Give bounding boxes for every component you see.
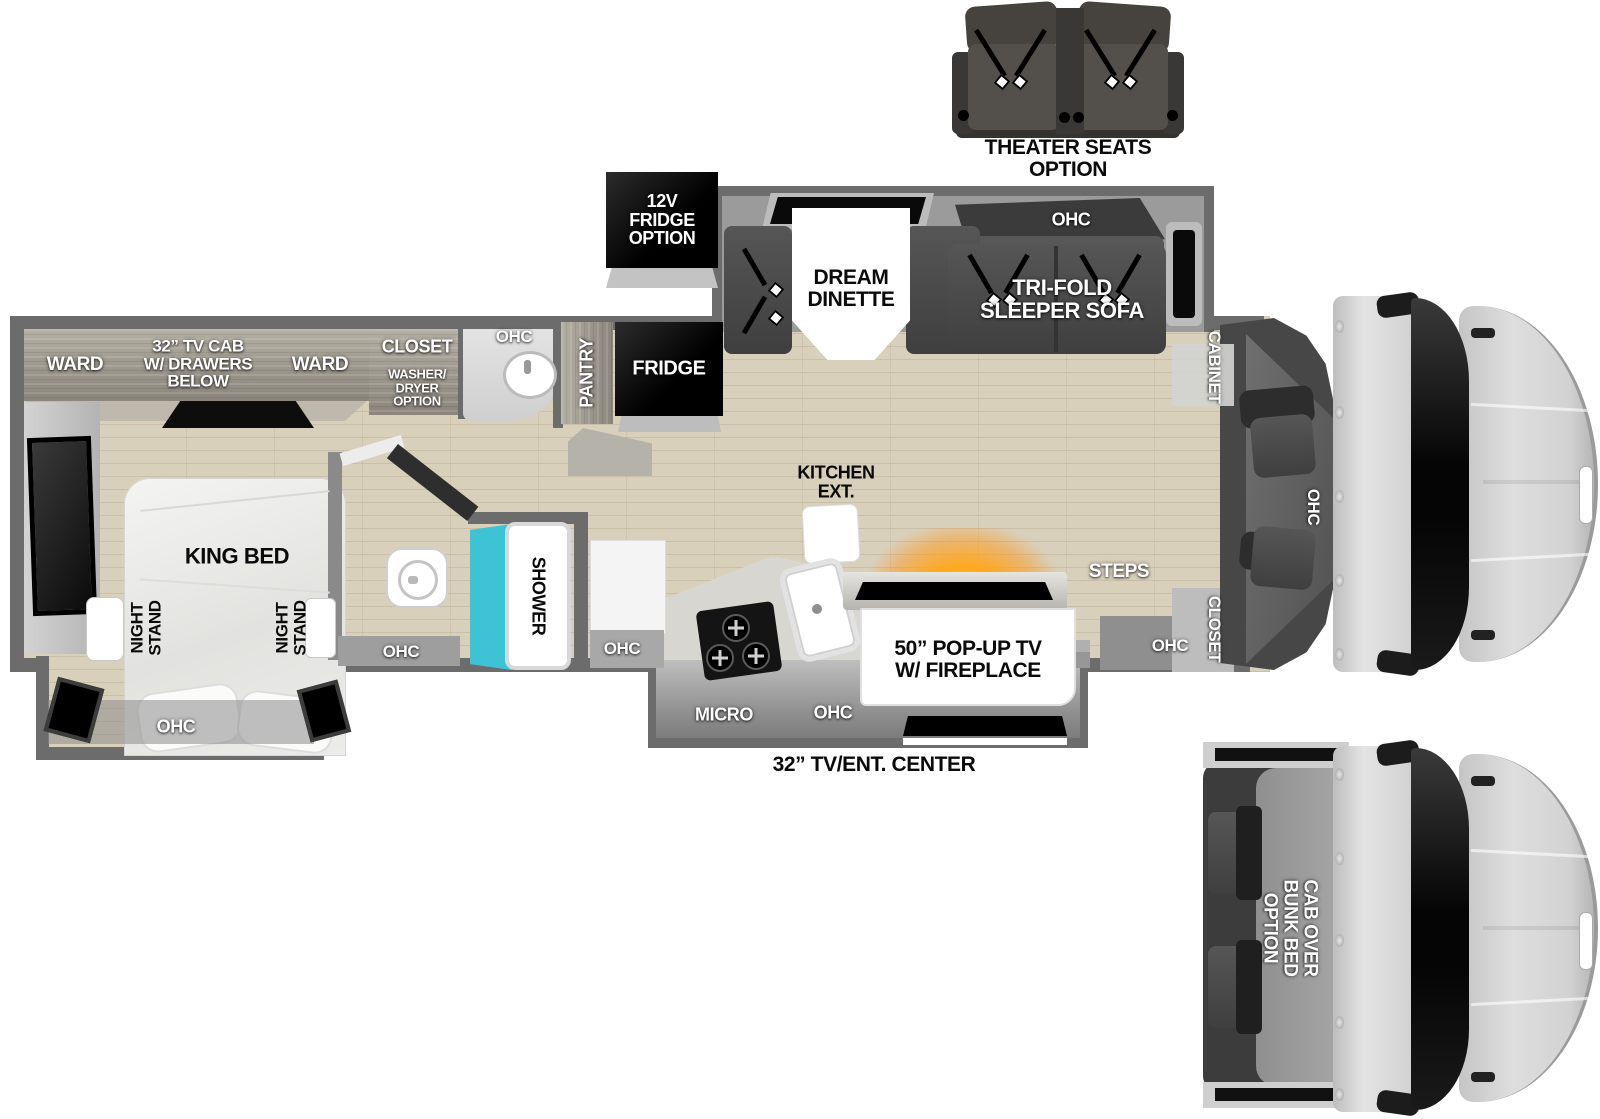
door-handle [1471,1072,1495,1082]
cab-hood [1459,306,1598,662]
cab-roof [1333,296,1419,672]
night-stand-right [305,598,336,658]
vanity-faucet [524,360,531,374]
tv-cab-label: 32” TV CAB W/ DRAWERS BELOW [144,337,252,390]
wall-shower-right [574,512,588,670]
stove-burner [706,644,734,672]
night-stand-left-label: NIGHT STAND [128,600,163,655]
theater-seats-option-label: THEATER SEATS OPTION [985,137,1152,181]
fridge-12v-option-label: 12V FRIDGE OPTION [629,192,696,248]
washer-dryer-label: WASHER/ DRYER OPTION [388,368,446,409]
roof-rivet [1335,1088,1344,1101]
wall-top [10,316,720,330]
theater-cushion-left [968,44,1060,130]
wall-left [10,316,24,672]
roof-rivet [1335,320,1344,333]
roof-rivet [1335,768,1344,781]
cup-holder [1059,112,1070,123]
driver-seat [1250,413,1317,478]
door-handle [1471,328,1495,338]
theater-seats-illustration [952,4,1184,140]
armrest-bolt [1167,110,1178,121]
bunk-cap-top-slot [1215,748,1337,761]
tv-ent-center-label: 32” TV/ENT. CENTER [773,754,976,776]
sofa-window [1173,230,1195,318]
steps-label: STEPS [1089,562,1149,582]
door-handle [1471,630,1495,640]
roof-rivet [1335,490,1344,503]
cab-roof [1333,746,1419,1112]
cab-cabinet-label: CABINET [1205,331,1223,404]
armrest-bolt [958,110,969,121]
cab-ohc-label: OHC [1304,489,1322,526]
night-stand-right-label: NIGHT STAND [273,600,308,655]
sofa-ohc-label: OHC [1052,211,1091,230]
night-stand-left [86,597,124,661]
ward-right-label: WARD [292,355,348,375]
tri-fold-sleeper-sofa-label: TRI-FOLD SLEEPER SOFA [980,277,1144,323]
cab-windshield [1411,748,1469,1110]
kitchen-ext-counter [802,504,861,565]
bunk-cap-bottom-slot [1215,1088,1337,1101]
vanity-ohc-label: OHC [496,328,533,346]
hood-crease [1483,480,1587,484]
dream-dinette-label: DREAM DINETTE [807,267,894,311]
hood-crease [1483,926,1587,930]
stove-burner [742,642,770,670]
popup-tv-slot [855,582,1053,600]
fridge-12v-option-base [606,268,718,288]
vanity-sink [503,351,557,399]
roof-rivet [1335,934,1344,947]
fridge-base [618,416,721,432]
micro-label: MICRO [695,706,753,725]
bunk-seat-headrest [1236,940,1262,1034]
popup-tv-label: 50” POP-UP TV W/ FIREPLACE [894,638,1041,682]
roof-rivet [1335,1016,1344,1029]
entry-closet-label: CLOSET [1205,596,1223,663]
bunk-seat-headrest [1236,806,1262,900]
fridge-label: FRIDGE [632,359,705,380]
roof-rivet [1335,406,1344,419]
front-grille-slot [1579,912,1593,970]
closet-label: CLOSET [382,338,453,357]
rv-floorplan-diagram: THEATER SEATS OPTION 12V FRIDGE OPTION D… [0,0,1600,1119]
toilet-bowl [398,560,438,600]
cab-windshield [1411,298,1469,670]
ent-center-tv [903,716,1067,736]
cup-holder [1073,112,1084,123]
front-grille-slot [1579,466,1593,524]
bedroom-tv [162,401,314,428]
cab-over-bunk-label: CAB OVER BUNK BED OPTION [1260,879,1319,976]
ent-center-shelf [903,738,1067,745]
roof-rivet [1335,648,1344,661]
toilet-flush [408,576,418,584]
theater-cushion-right [1076,44,1168,130]
shower-label: SHOWER [529,557,548,636]
bath-ohc-right-cabinet [590,540,666,634]
bedroom-ohc-label: OHC [157,718,196,737]
roof-rivet [1335,852,1344,865]
truck-cab-front [1333,288,1600,680]
roof-rivet [1335,574,1344,587]
bath-ohc-right-label: OHC [604,640,641,658]
dash-cabinet [1172,344,1234,406]
king-bed-label: KING BED [185,546,289,569]
entry-ohc-label: OHC [1152,637,1189,655]
passenger-seat [1250,525,1317,590]
bath-ohc-left-label: OHC [383,643,420,661]
kitchen-ext-label: KITCHEN EXT. [797,463,874,500]
bedroom-wall-tv [27,436,97,616]
stove-burner [722,614,750,642]
truck-cab-bunk-option [1333,738,1600,1119]
kitchen-ohc-label: OHC [814,704,853,723]
pantry-label: PANTRY [578,338,597,408]
door-handle [1471,776,1495,786]
kitchen-faucet [812,604,822,614]
ward-left-label: WARD [47,355,103,375]
